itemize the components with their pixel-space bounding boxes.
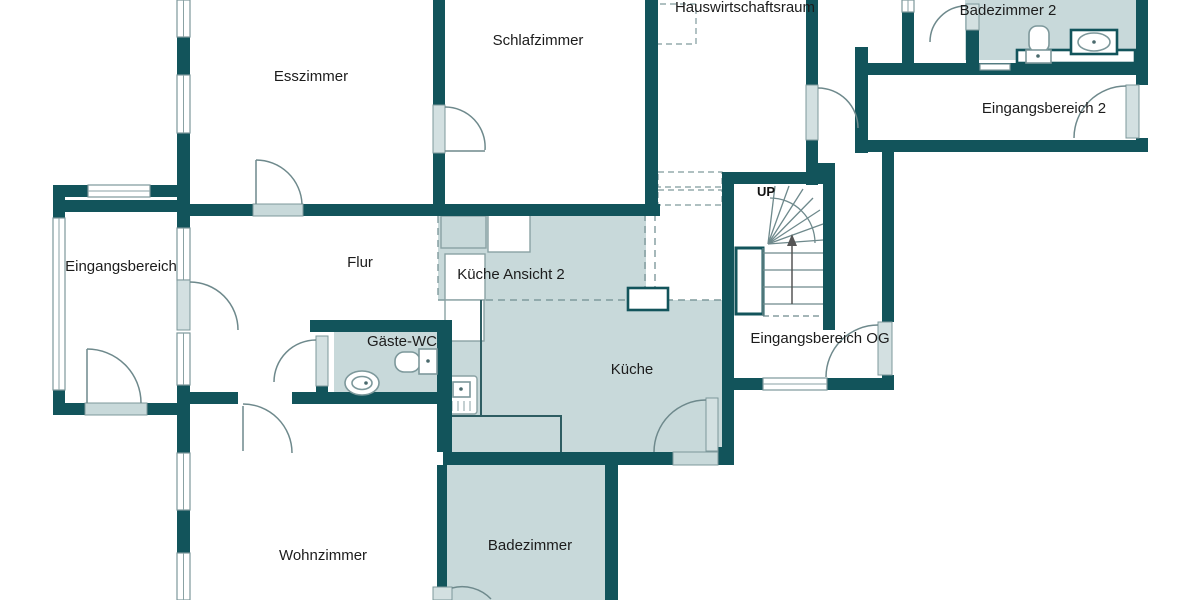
room-label-gaeste-wc: Gäste-WC: [367, 333, 437, 350]
door-arc: [256, 160, 302, 204]
window-icon: [177, 228, 190, 280]
up-arrow-icon: [787, 234, 797, 304]
door-leaf: [316, 336, 328, 386]
window-icon: [177, 75, 190, 133]
toilet-icon: [395, 349, 437, 374]
window-icon: [177, 0, 190, 37]
door-leaf: [806, 85, 818, 140]
kitchen-cabinet-island: [488, 214, 530, 252]
window-icon: [177, 453, 190, 510]
door-leaf: [433, 105, 445, 153]
room-label-kueche: Küche: [611, 361, 654, 378]
stairs-up-label: UP: [757, 184, 775, 199]
dining-door-sill: [253, 204, 303, 216]
room-label-esszimmer: Esszimmer: [274, 68, 348, 85]
sink-icon: [345, 371, 379, 395]
opening-dashed-box-1: [658, 172, 722, 187]
door-arc: [243, 404, 292, 453]
chimney-shaft-icon: [628, 288, 668, 310]
room-label-hauswirtschaftsraum: Hauswirtschaftsraum: [675, 0, 815, 16]
understair-closet: [736, 248, 763, 314]
window-icon: [53, 218, 65, 390]
door-leaf: [1126, 85, 1139, 138]
window-icon: [177, 333, 190, 385]
entry-door-sill: [85, 403, 147, 415]
window-icon: [88, 185, 150, 197]
staircase: [736, 186, 823, 316]
door-arc: [818, 88, 858, 128]
toilet-icon: [1026, 26, 1051, 63]
door-leaf: [706, 398, 718, 451]
floor-plan: Esszimmer Schlafzimmer Hauswirtschaftsra…: [0, 0, 1200, 600]
window-icon: [177, 553, 190, 600]
room-label-kueche-ansicht-2: Küche Ansicht 2: [457, 266, 565, 283]
room-label-badezimmer-2: Badezimmer 2: [960, 2, 1057, 19]
door-leaf: [177, 280, 190, 330]
room-label-eingangsbereich: Eingangsbereich: [65, 258, 177, 275]
kitchen-door-sill: [673, 452, 718, 465]
kitchen-floor: [447, 300, 722, 452]
opening-dashed-box-2: [658, 190, 722, 205]
door-arc: [445, 107, 485, 150]
door-arc: [87, 349, 141, 403]
kitchen-cabinet-teal: [441, 216, 486, 248]
sink-icon: [1071, 30, 1117, 54]
room-label-eingangsbereich-og: Eingangsbereich OG: [750, 330, 889, 347]
shaft-gap: [646, 214, 654, 290]
room-label-wohnzimmer: Wohnzimmer: [279, 547, 367, 564]
door-leaf: [433, 587, 452, 600]
room-label-eingangsbereich-2: Eingangsbereich 2: [982, 100, 1106, 117]
door-arc: [190, 282, 238, 330]
bathroom-floor: [447, 465, 605, 600]
door-arc: [274, 340, 316, 382]
window-icon: [763, 378, 827, 390]
window-icon: [902, 0, 914, 12]
stove-knob: [459, 387, 463, 391]
room-label-flur: Flur: [347, 254, 373, 271]
room-label-badezimmer: Badezimmer: [488, 537, 572, 554]
winder-treads: [768, 186, 823, 244]
room-label-schlafzimmer: Schlafzimmer: [493, 32, 584, 49]
